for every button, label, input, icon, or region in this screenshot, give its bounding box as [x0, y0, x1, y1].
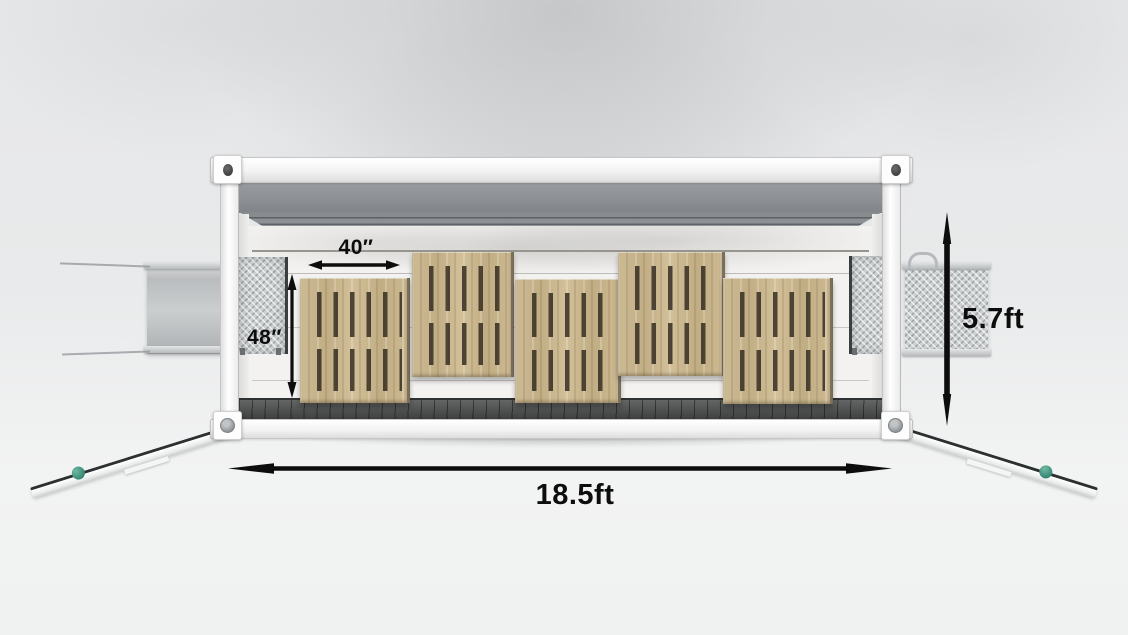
pallet	[723, 278, 833, 404]
left-plate-top-flange	[144, 262, 227, 269]
casting-hole-icon	[223, 164, 233, 176]
container-length-arrow-icon	[228, 462, 892, 475]
plate-latch	[240, 348, 245, 355]
pallet-depth-label: 48″	[247, 326, 307, 350]
pallet	[412, 252, 514, 377]
container-height-label: 5.7ft	[962, 303, 1024, 336]
bottom-rail	[210, 419, 913, 439]
left-exterior-loading-plate	[147, 265, 224, 354]
top-rail	[210, 157, 913, 183]
corner-casting-top-left	[213, 155, 242, 184]
left-plate-cable	[60, 262, 150, 267]
corner-casting-bottom-left	[213, 411, 242, 440]
left-ramp-foot	[124, 456, 169, 474]
casting-hole-icon	[891, 164, 901, 176]
plate-latch	[852, 348, 857, 355]
pallet-width-label: 40″	[312, 236, 400, 260]
container-header-beam	[239, 181, 882, 213]
container-height-arrow-icon	[940, 212, 954, 426]
pallet	[515, 279, 621, 403]
left-corner-post	[220, 179, 239, 422]
left-ramp-roller-icon	[70, 465, 86, 481]
scene-container-diagram: 40″ 48″ 5.7ft 18.5ft	[0, 0, 1128, 635]
right-ramp-foot	[966, 459, 1011, 477]
wall-seam	[252, 273, 869, 274]
casting-hole-icon	[888, 418, 903, 433]
right-plate-handle-icon	[908, 252, 938, 268]
pallet-width-arrow-icon	[308, 259, 400, 271]
pallet	[618, 252, 725, 376]
right-corner-post	[882, 179, 901, 422]
left-plate-cable	[62, 350, 150, 355]
casting-hole-icon	[220, 418, 235, 433]
container-length-label: 18.5ft	[480, 479, 670, 512]
corner-casting-bottom-right	[881, 411, 910, 440]
corner-casting-top-right	[881, 155, 910, 184]
right-ramp-roller-icon	[1038, 464, 1054, 480]
pallet	[300, 278, 410, 403]
left-plate-bottom-flange	[144, 346, 227, 353]
right-door-ramp	[891, 424, 1098, 498]
